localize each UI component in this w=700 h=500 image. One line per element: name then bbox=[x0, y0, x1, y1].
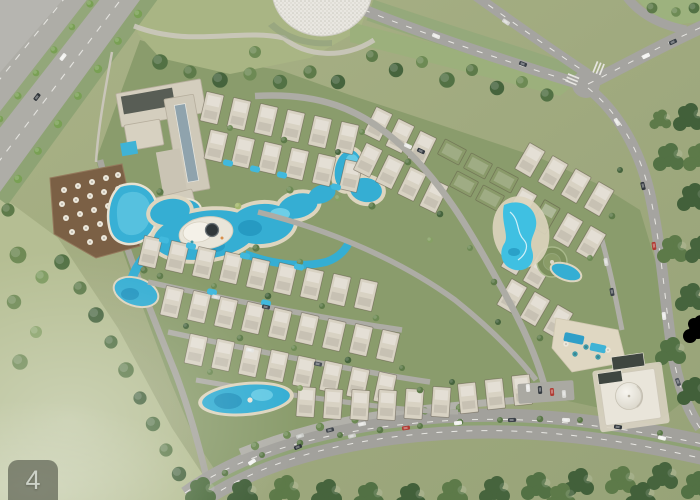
image-index-badge: 4 bbox=[8, 460, 58, 500]
aerial-masterplan-render: 4 bbox=[0, 0, 700, 500]
image-index-label: 4 bbox=[25, 465, 40, 496]
mosque-parking bbox=[517, 380, 574, 404]
